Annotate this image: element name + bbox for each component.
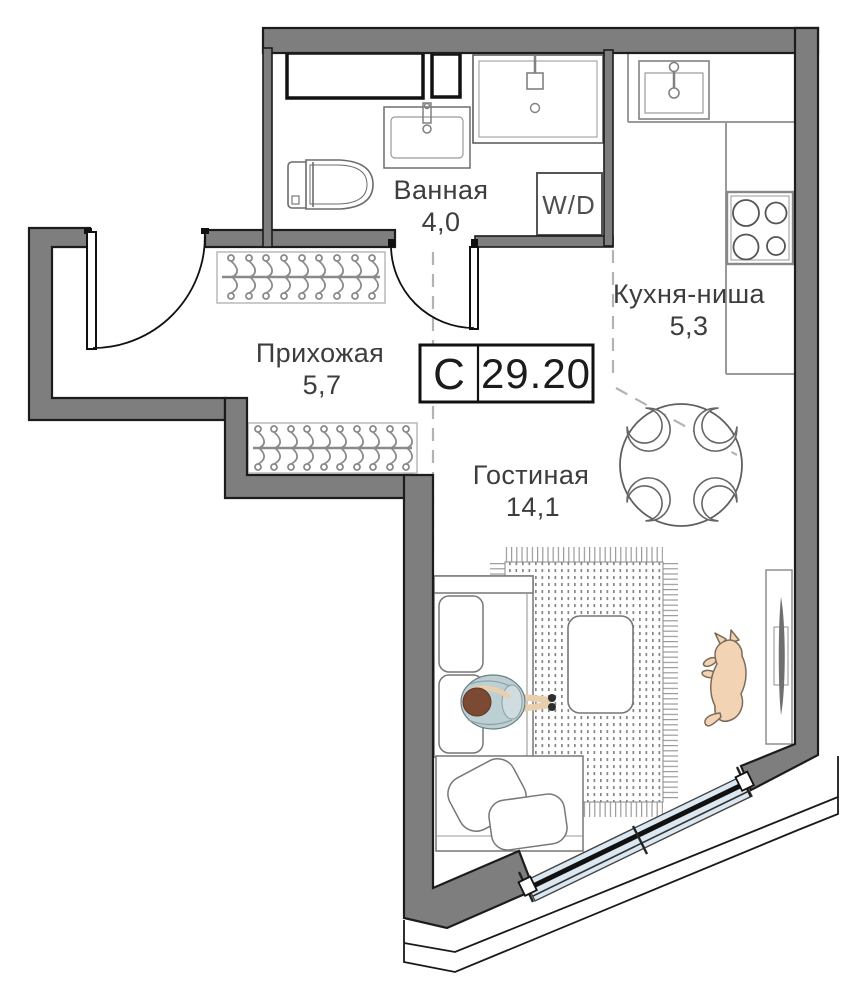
entrance-door <box>84 228 209 349</box>
shower-head-icon <box>527 73 543 89</box>
room-area-hallway: 5,7 <box>303 370 342 400</box>
toilet <box>288 160 373 209</box>
wardrobe-rail-2 <box>248 423 417 473</box>
room-label-living: Гостиная <box>473 460 590 490</box>
shower <box>473 53 603 143</box>
wall-hall-bath <box>205 230 395 247</box>
room-label-bathroom: Ванная <box>394 175 489 205</box>
floor-plan-page: W/D <box>0 0 851 992</box>
wall-bath-south-right <box>475 236 613 247</box>
wall-top <box>263 28 818 53</box>
wall-bath-kitchen <box>604 50 613 246</box>
dining-table <box>620 404 742 526</box>
unit-type-label: С <box>433 350 465 399</box>
room-area-kitchen: 5,3 <box>670 311 709 341</box>
tv-unit <box>766 570 792 744</box>
room-area-bathroom: 4,0 <box>422 207 461 237</box>
kitchen-counter <box>628 53 795 374</box>
vent-shafts <box>287 53 460 98</box>
washer-dryer-label: W/D <box>542 190 596 220</box>
room-label-hallway: Прихожая <box>256 338 384 368</box>
bathroom-vanity <box>384 103 470 168</box>
kitchen-sink <box>639 61 709 119</box>
unit-total-area: 29.20 <box>481 350 591 397</box>
wall-entrance-left <box>29 228 225 420</box>
floor-plan-svg: W/D <box>0 0 851 992</box>
room-label-kitchen: Кухня-ниша <box>613 279 766 309</box>
wall-bath-west <box>263 48 272 247</box>
wardrobe-rail-1 <box>217 252 385 303</box>
walls <box>29 28 818 928</box>
drain-icon <box>531 104 540 113</box>
stove <box>727 192 793 264</box>
room-area-living: 14,1 <box>506 492 560 522</box>
washer-dryer: W/D <box>537 173 602 235</box>
dog <box>702 630 746 726</box>
coffee-table <box>568 616 633 713</box>
unit-area-badge: С 29.20 <box>420 345 593 402</box>
